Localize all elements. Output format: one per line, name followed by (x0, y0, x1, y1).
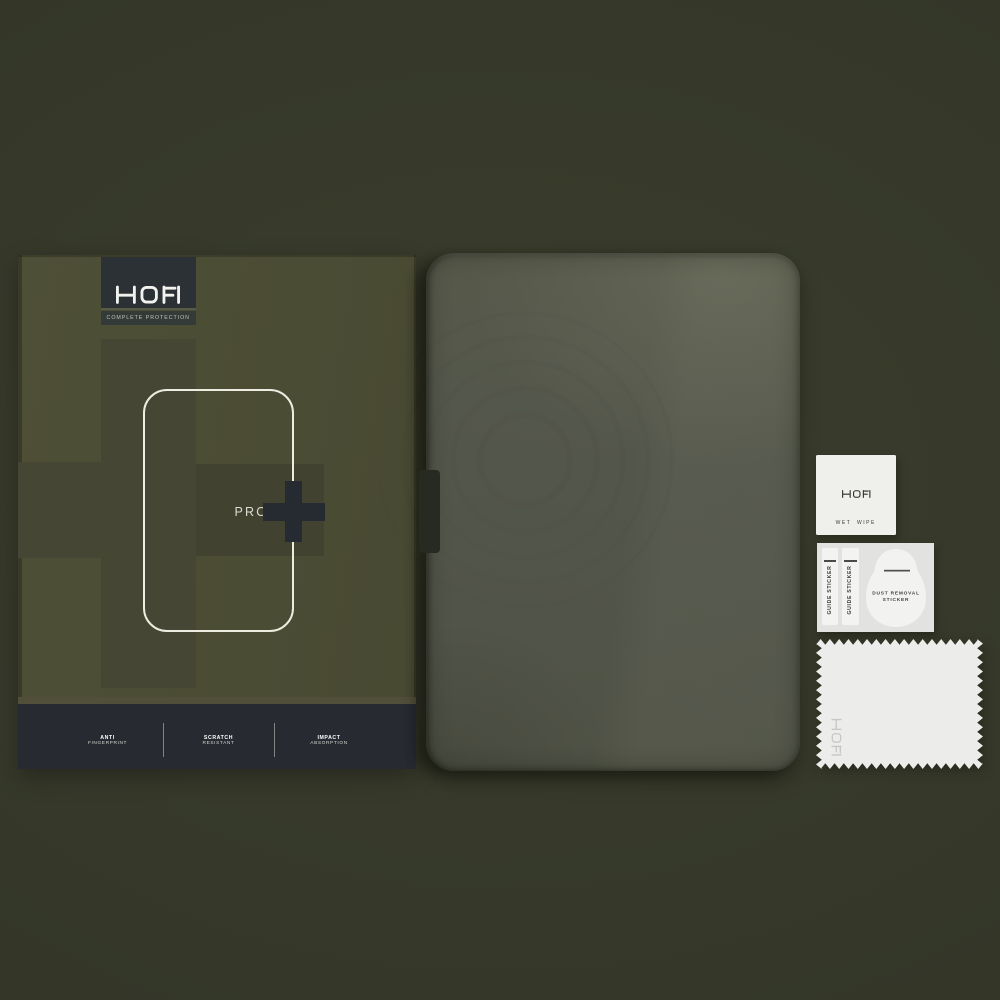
svg-text:DUST REMOVAL: DUST REMOVAL (872, 591, 920, 597)
svg-text:STICKER: STICKER (882, 597, 909, 603)
